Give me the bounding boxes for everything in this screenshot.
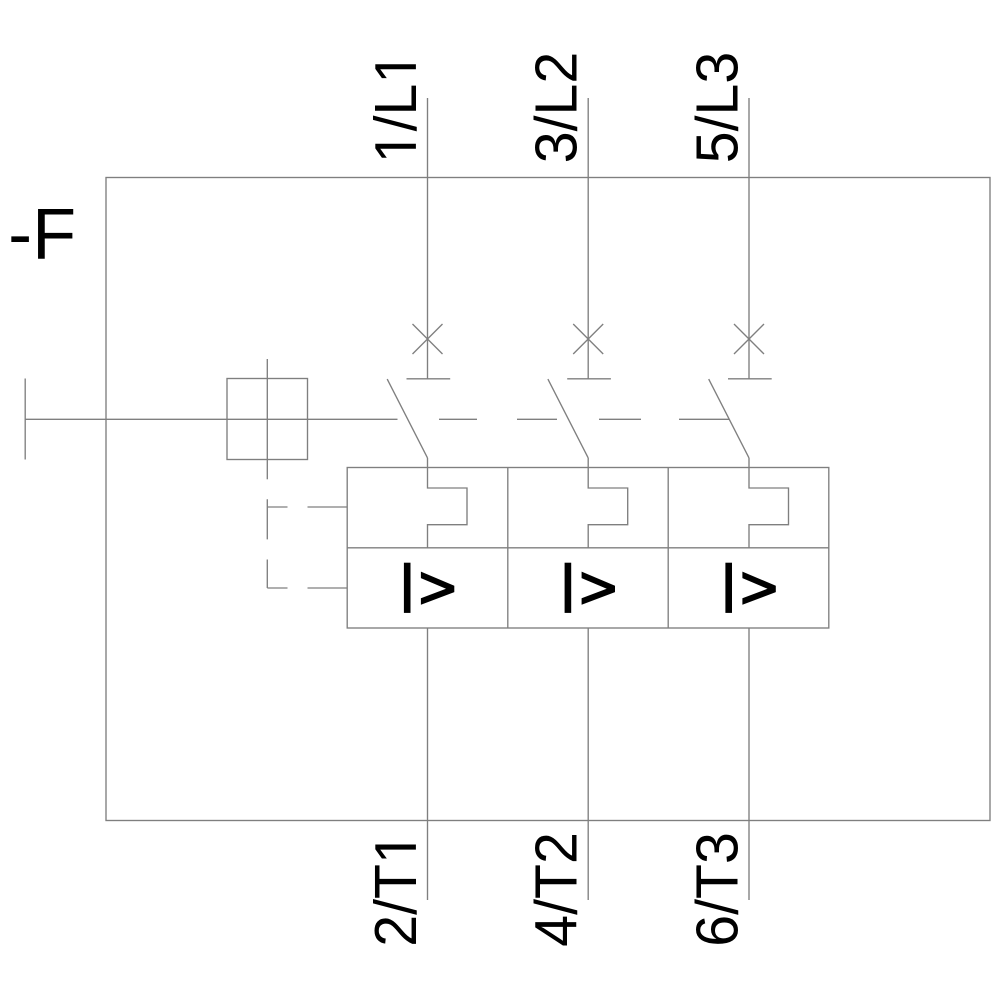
svg-text:-F: -F: [8, 194, 76, 274]
svg-text:3/L2: 3/L2: [524, 52, 590, 163]
svg-text:4/T2: 4/T2: [524, 832, 590, 946]
svg-text:5/L3: 5/L3: [685, 52, 751, 163]
svg-text:/L: /L: [363, 84, 429, 132]
svg-text:2/T: 2/T: [363, 864, 429, 947]
svg-text:6/T3: 6/T3: [685, 832, 751, 946]
